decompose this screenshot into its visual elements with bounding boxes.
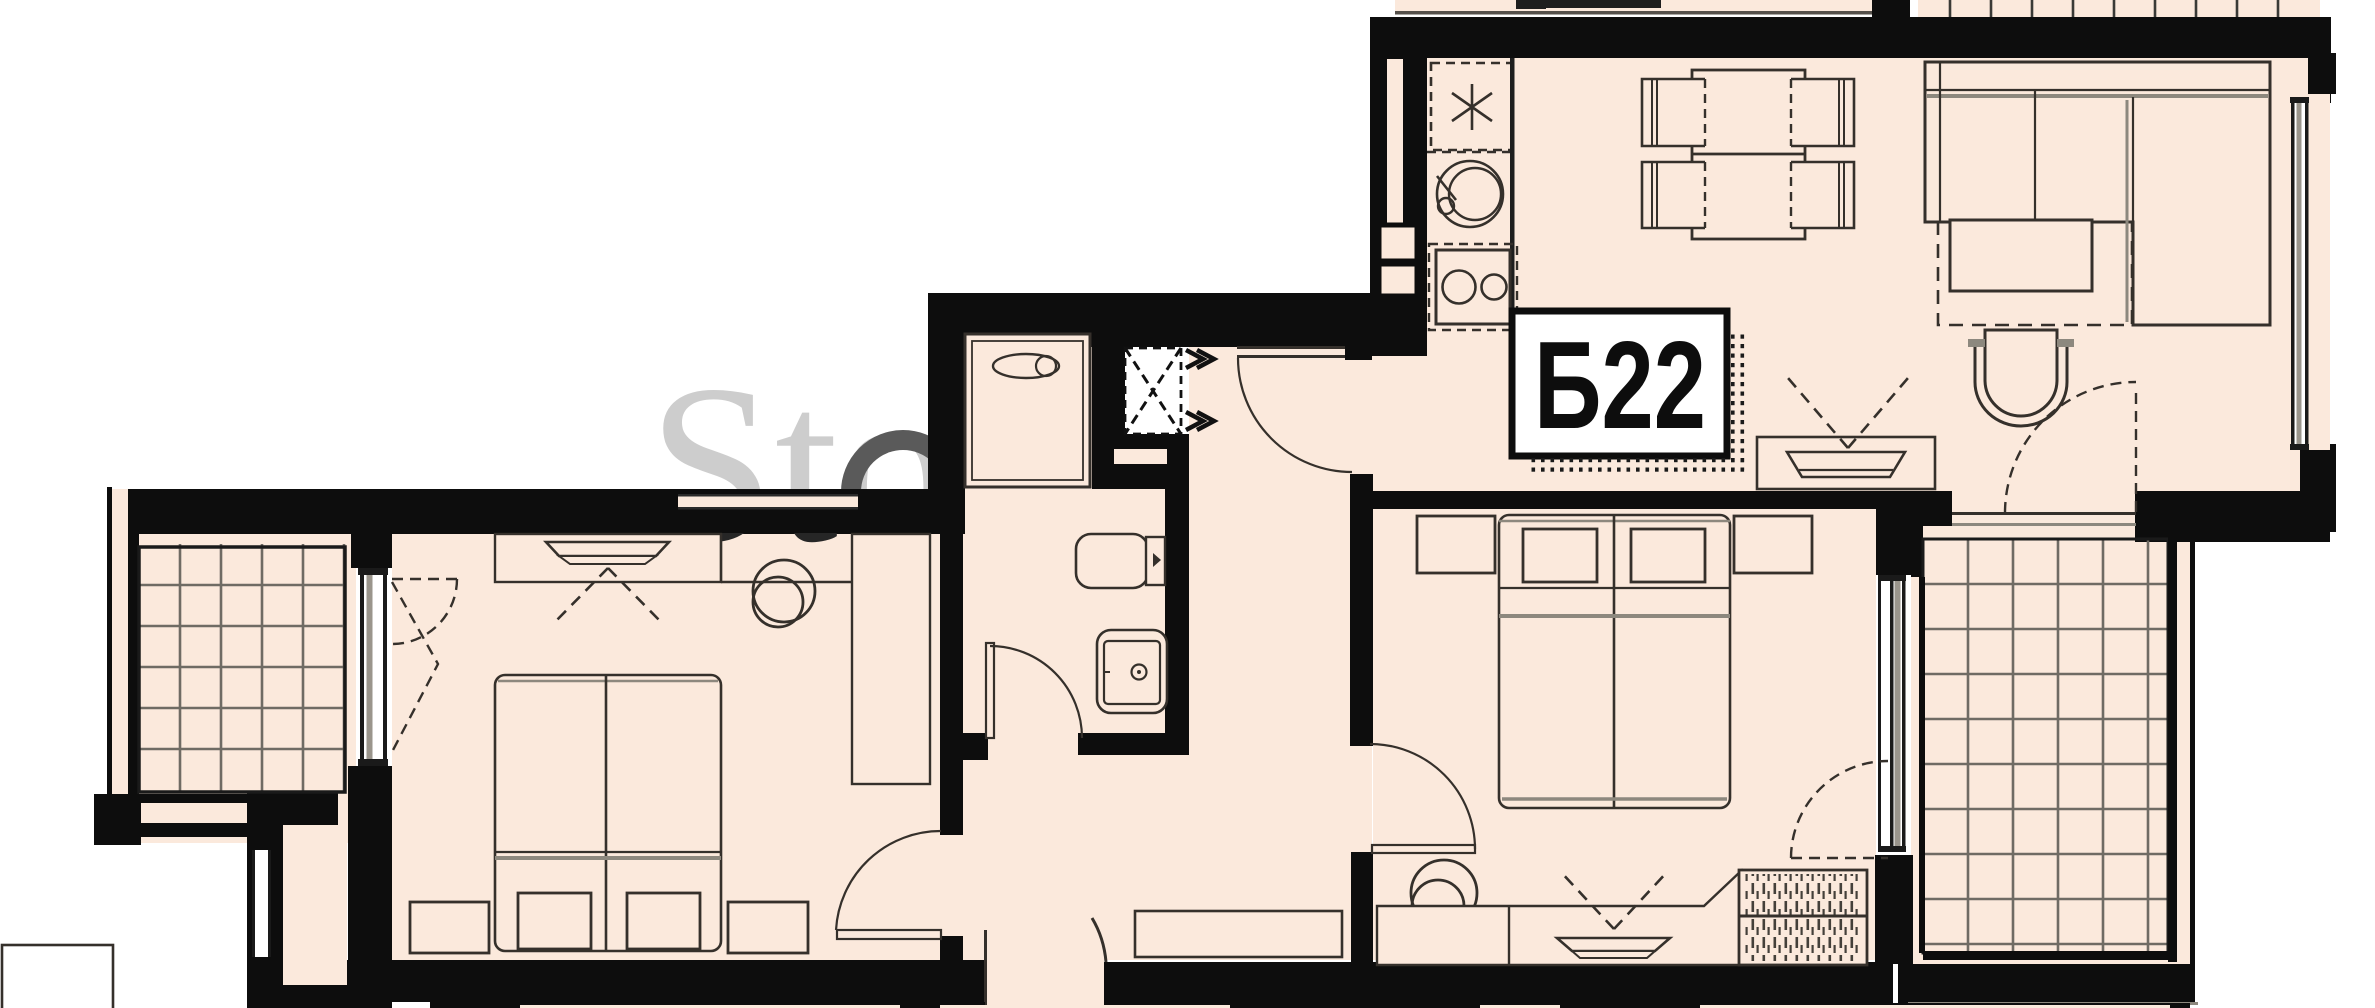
svg-text:Б22: Б22 xyxy=(1534,317,1706,455)
